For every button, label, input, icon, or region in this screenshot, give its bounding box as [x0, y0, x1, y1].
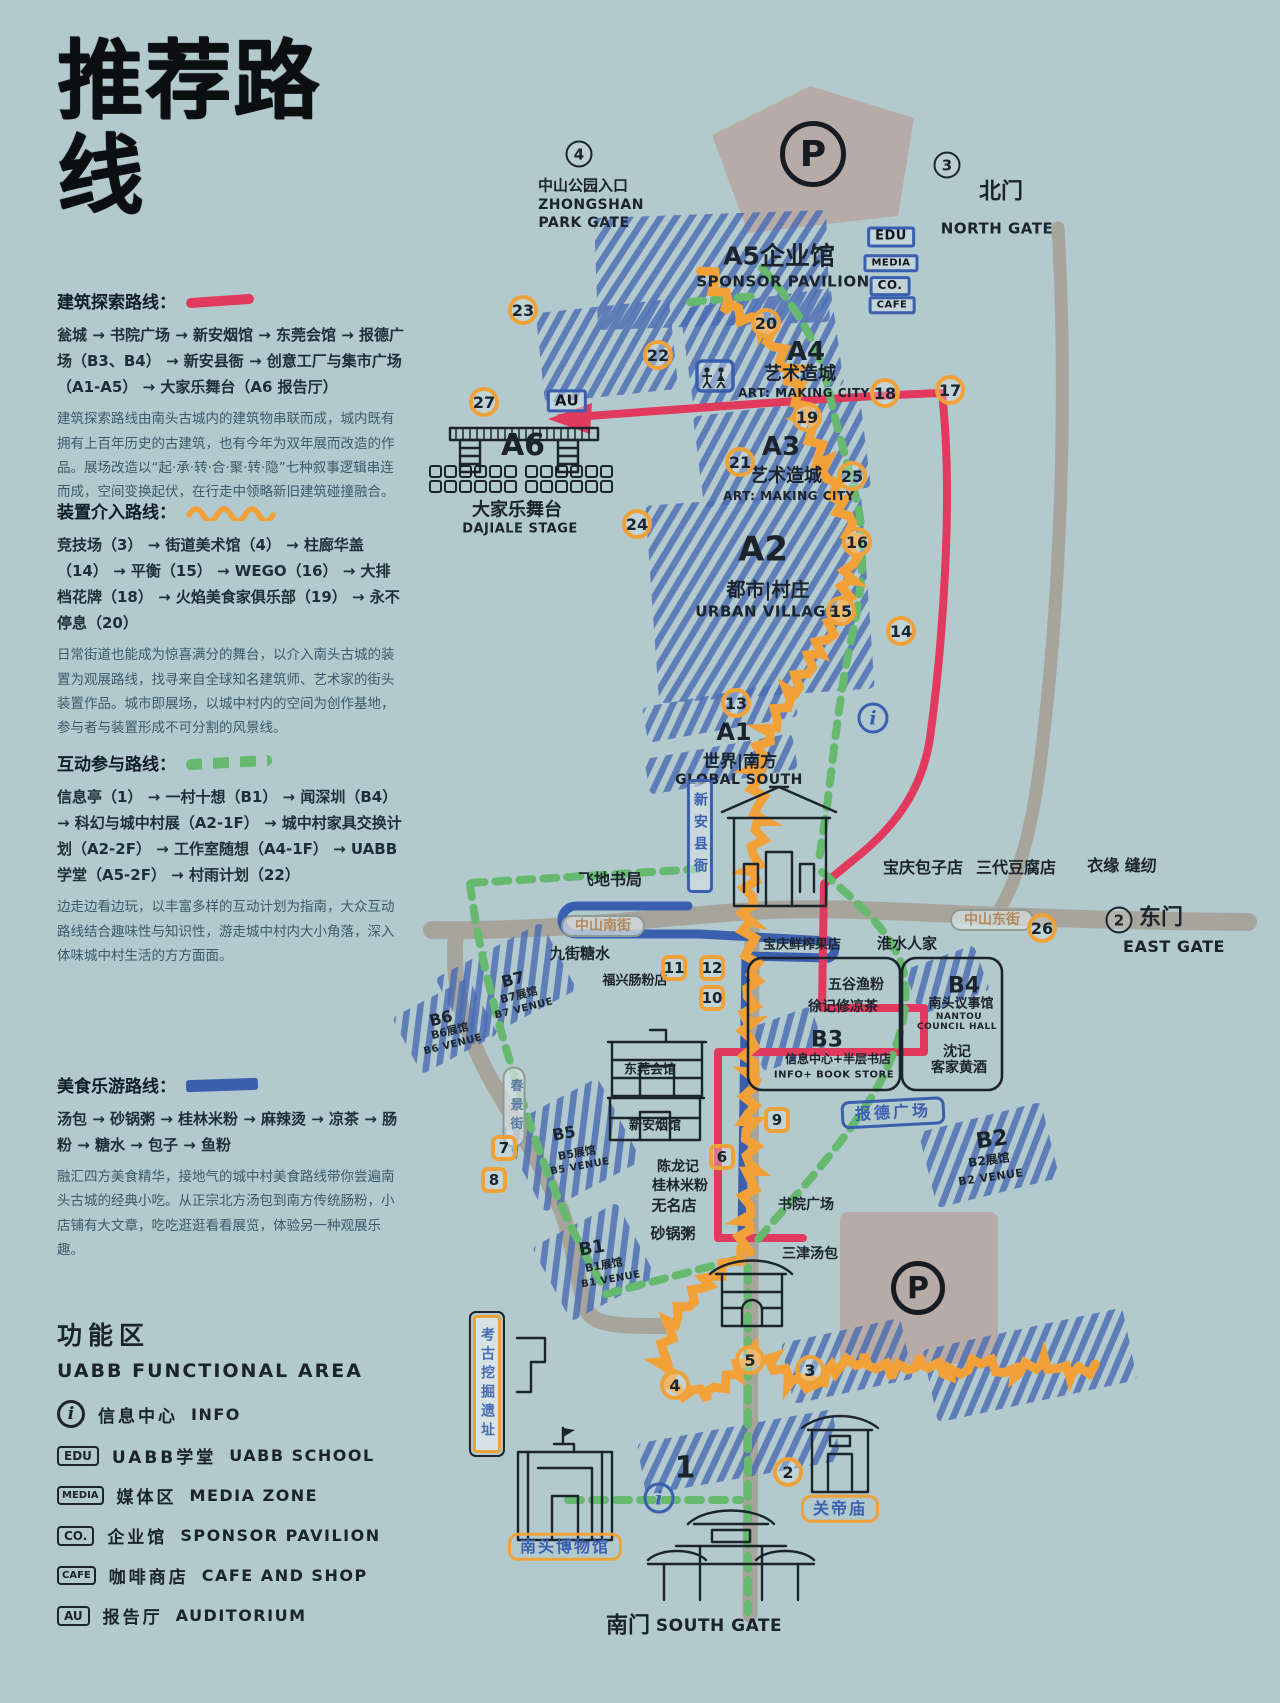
stop-2: 2	[773, 1457, 803, 1487]
route-stops: 信息亭（1） → 一村十想（B1） → 闻深圳（B4） → 科幻与城中村展（A2…	[57, 784, 405, 888]
stop-23: 23	[508, 295, 538, 325]
route-name: 建筑探索路线：	[57, 288, 176, 313]
map-label: SPONSOR PAVILION	[696, 273, 869, 290]
route-description: 建筑探索路线由南头古城内的建筑物串联而成，城内既有拥有上百年历史的古建筑，也有今…	[57, 407, 405, 504]
map-label: 艺术造城	[750, 467, 822, 488]
legend-item-auditorium: AU 报告厅 AUDITORIUM	[57, 1603, 405, 1628]
stop-11: 11	[661, 955, 687, 981]
map-label: 新安县衙	[687, 779, 713, 893]
stop-1: 1	[675, 1451, 696, 1486]
map-label: 宝庆包子店	[883, 859, 963, 877]
edu-icon: EDU	[57, 1446, 99, 1466]
route-stops: 汤包 → 砂锅粥 → 桂林米粉 → 麻辣烫 → 凉茶 → 肠粉 → 糖水 → 包…	[57, 1106, 405, 1158]
legend-item-school: EDU UABB学堂 UABB SCHOOL	[57, 1443, 405, 1468]
stop-27: 27	[469, 387, 499, 417]
poster: 推荐路线 建筑探索路线： 瓮城 → 书院广场 → 新安烟馆 → 东莞会馆 → 报…	[0, 0, 1280, 1703]
map-label: COUNCIL HALL	[917, 1022, 997, 1032]
map-label: 中山南街	[561, 915, 645, 937]
stop-12: 12	[699, 955, 725, 981]
map-label: 南头博物馆	[508, 1533, 622, 1561]
route-section-installation: 装置介入路线： 竞技场（3） → 街道美术馆（4） → 柱廊华盖（14） → 平…	[57, 498, 405, 741]
route-description: 融汇四方美食精华，接地气的城中村美食路线带你尝遍南头古城的经典小吃。从正宗北方汤…	[57, 1165, 405, 1262]
stop-16: 16	[842, 527, 872, 557]
info-icon: i	[858, 703, 889, 734]
red-route-swatch	[186, 293, 255, 308]
map-label: B3	[811, 1027, 843, 1052]
map-label: 客家黄酒	[931, 1060, 987, 1076]
map-label: ZHONGSHAN	[538, 197, 644, 213]
map-label: 艺术造城	[764, 365, 836, 386]
map-label: 东门	[1139, 905, 1183, 930]
stop-18: 18	[870, 378, 900, 408]
stop-3: 3	[795, 1355, 825, 1385]
map-label: 考古挖掘遗址	[473, 1315, 501, 1453]
legend-label-en: INFO	[191, 1405, 241, 1424]
route-section-architecture: 建筑探索路线： 瓮城 → 书院广场 → 新安烟馆 → 东莞会馆 → 报德广场（B…	[57, 288, 405, 504]
orange-wave-swatch	[186, 501, 278, 521]
route-stops: 竞技场（3） → 街道美术馆（4） → 柱廊华盖（14） → 平衡（15） → …	[57, 532, 405, 636]
functional-area-legend: 功能区 UABB FUNCTIONAL AREA i 信息中心 INFO EDU…	[57, 1316, 405, 1628]
route-stops: 瓮城 → 书院广场 → 新安烟馆 → 东莞会馆 → 报德广场（B3、B4） → …	[57, 322, 405, 400]
blue-route-swatch	[186, 1077, 258, 1092]
map-label: A1	[716, 719, 751, 747]
stop-21: 21	[725, 447, 755, 477]
stop-25: 25	[837, 461, 867, 491]
map-label: URBAN VILLAGE	[695, 603, 837, 620]
info-icon: i	[57, 1400, 85, 1428]
map-label: 北门	[979, 179, 1023, 204]
stop-7: 7	[491, 1135, 517, 1161]
stop-6: 6	[709, 1144, 735, 1170]
stop-13: 13	[721, 688, 751, 718]
map-label: NORTH GATE	[941, 220, 1053, 237]
map-label: 东莞会馆	[624, 1064, 676, 1079]
map-label: 三代豆腐店	[976, 859, 1056, 877]
legend-label-cn: 媒体区	[117, 1483, 177, 1508]
legend-title-en: UABB FUNCTIONAL AREA	[57, 1360, 405, 1382]
map-label: B4	[948, 973, 980, 998]
legend-label-cn: 企业馆	[107, 1523, 167, 1548]
stop-24: 24	[622, 509, 652, 539]
media-icon: MEDIA	[57, 1486, 104, 1505]
map-label: 书院广场	[778, 1197, 834, 1213]
map-label: 报德广场	[840, 1096, 945, 1130]
stop-10: 10	[699, 985, 725, 1011]
route-name: 互动参与路线：	[57, 750, 176, 775]
stop-20: 20	[751, 308, 781, 338]
stop-8: 8	[481, 1167, 507, 1193]
stop-4: 4	[660, 1370, 690, 1400]
map-label: A3	[762, 433, 800, 463]
legend-label-en: UABB SCHOOL	[229, 1446, 374, 1465]
restroom-icon	[697, 361, 733, 391]
map-label: MEDIA	[863, 254, 918, 272]
route-description: 日常街道也能成为惊喜满分的舞台，以介入南头古城的装置为观展路线，找寻来自全球知名…	[57, 643, 405, 740]
map-label: 陈龙记	[657, 1159, 699, 1175]
legend-item-cafe: CAFE 咖啡商店 CAFE AND SHOP	[57, 1563, 405, 1588]
map-label: ART: MAKING CITY	[738, 387, 870, 401]
legend-title-cn: 功能区	[57, 1316, 405, 1352]
map-label: 三津汤包	[782, 1246, 838, 1262]
legend-item-sponsor: CO. 企业馆 SPONSOR PAVILION	[57, 1523, 405, 1548]
au-icon: AU	[57, 1606, 90, 1626]
gate-number-4: 4	[566, 141, 593, 168]
map-label: EDU	[867, 227, 915, 248]
map-label: 九街糖水	[550, 945, 610, 962]
parking-icon: P	[891, 1261, 945, 1315]
map-label: CAFE	[869, 296, 916, 314]
legend-label-en: MEDIA ZONE	[190, 1486, 319, 1505]
map-label: 无名店	[651, 1197, 696, 1214]
map-label: 桂林米粉	[652, 1178, 708, 1194]
route-name: 装置介入路线：	[57, 498, 176, 523]
legend-item-media: MEDIA 媒体区 MEDIA ZONE	[57, 1483, 405, 1508]
map-label: 淮水人家	[877, 935, 937, 952]
map-label: EAST GATE	[1123, 938, 1225, 956]
map-label: 世界|南方	[703, 753, 777, 773]
page-title: 推荐路线	[57, 34, 405, 223]
map-label: A2	[738, 530, 788, 569]
legend-label-en: SPONSOR PAVILION	[180, 1526, 380, 1545]
legend-label-en: CAFE AND SHOP	[202, 1566, 368, 1585]
map-label: CO.	[870, 276, 911, 296]
map-label: 砂锅粥	[650, 1225, 695, 1242]
parking-icon: P	[780, 121, 846, 187]
map-label: 宝庆鲜榨果店	[763, 939, 841, 954]
map-label: 都市|村庄	[727, 580, 810, 602]
legend-label-cn: 报告厅	[103, 1603, 163, 1628]
gate-number-2: 2	[1106, 907, 1133, 934]
gate-number-3: 3	[934, 152, 961, 179]
map-label: A5企业馆	[723, 243, 835, 272]
map-label: 福兴肠粉店	[602, 975, 667, 990]
stop-19: 19	[792, 402, 822, 432]
legend-label-cn: UABB学堂	[112, 1443, 216, 1468]
map-label: 五谷渔粉	[828, 977, 884, 993]
map-label: 沈记	[943, 1044, 971, 1060]
stop-22: 22	[643, 340, 673, 370]
map-label: 南头议事馆	[928, 998, 993, 1013]
stop-17: 17	[935, 375, 965, 405]
route-description: 边走边看边玩，以丰富多样的互动计划为指南，大众互动路线结合趣味性与知识性，游走城…	[57, 895, 405, 968]
map-label: 中山公园入口	[538, 177, 628, 194]
stop-9: 9	[764, 1107, 790, 1133]
map-label: 新安烟馆	[629, 1120, 681, 1135]
map-label: NANTOU	[936, 1012, 982, 1022]
map-label: INFO+ BOOK STORE	[774, 1069, 894, 1081]
map-label: AU	[547, 389, 587, 412]
stop-26: 26	[1027, 913, 1057, 943]
map-label: 衣缘 缝纫	[1087, 857, 1157, 875]
green-dash-swatch	[186, 755, 272, 770]
cafe-icon: CAFE	[57, 1566, 96, 1585]
map-label: 关帝庙	[801, 1495, 879, 1523]
stop-15: 15	[826, 596, 856, 626]
route-section-interactive: 互动参与路线： 信息亭（1） → 一村十想（B1） → 闻深圳（B4） → 科幻…	[57, 750, 405, 968]
map-label: A6	[501, 429, 545, 464]
info-icon: i	[644, 1483, 675, 1514]
map-label: PARK GATE	[538, 215, 629, 231]
map-label: SOUTH GATE	[656, 1617, 782, 1637]
stop-5: 5	[735, 1345, 765, 1375]
stop-14: 14	[886, 616, 916, 646]
legend-item-info: i 信息中心 INFO	[57, 1400, 405, 1428]
map-label: 徐记修凉茶	[808, 999, 878, 1015]
co-icon: CO.	[57, 1526, 94, 1546]
route-name: 美食乐游路线：	[57, 1072, 176, 1097]
legend-label-en: AUDITORIUM	[176, 1606, 307, 1625]
route-section-food: 美食乐游路线： 汤包 → 砂锅粥 → 桂林米粉 → 麻辣烫 → 凉茶 → 肠粉 …	[57, 1072, 405, 1262]
map-label: ART: MAKING CITY	[723, 490, 855, 504]
legend-label-cn: 咖啡商店	[109, 1563, 189, 1588]
map-label: DAJIALE STAGE	[462, 523, 578, 538]
map-label: 飞地书局	[578, 871, 642, 889]
map-label: 中山东街	[950, 909, 1034, 931]
map-label: 信息中心+半层书店	[785, 1053, 891, 1067]
map-label: 南门	[606, 1613, 650, 1638]
map-label: 大家乐舞台	[472, 501, 562, 522]
legend-label-cn: 信息中心	[98, 1402, 178, 1427]
